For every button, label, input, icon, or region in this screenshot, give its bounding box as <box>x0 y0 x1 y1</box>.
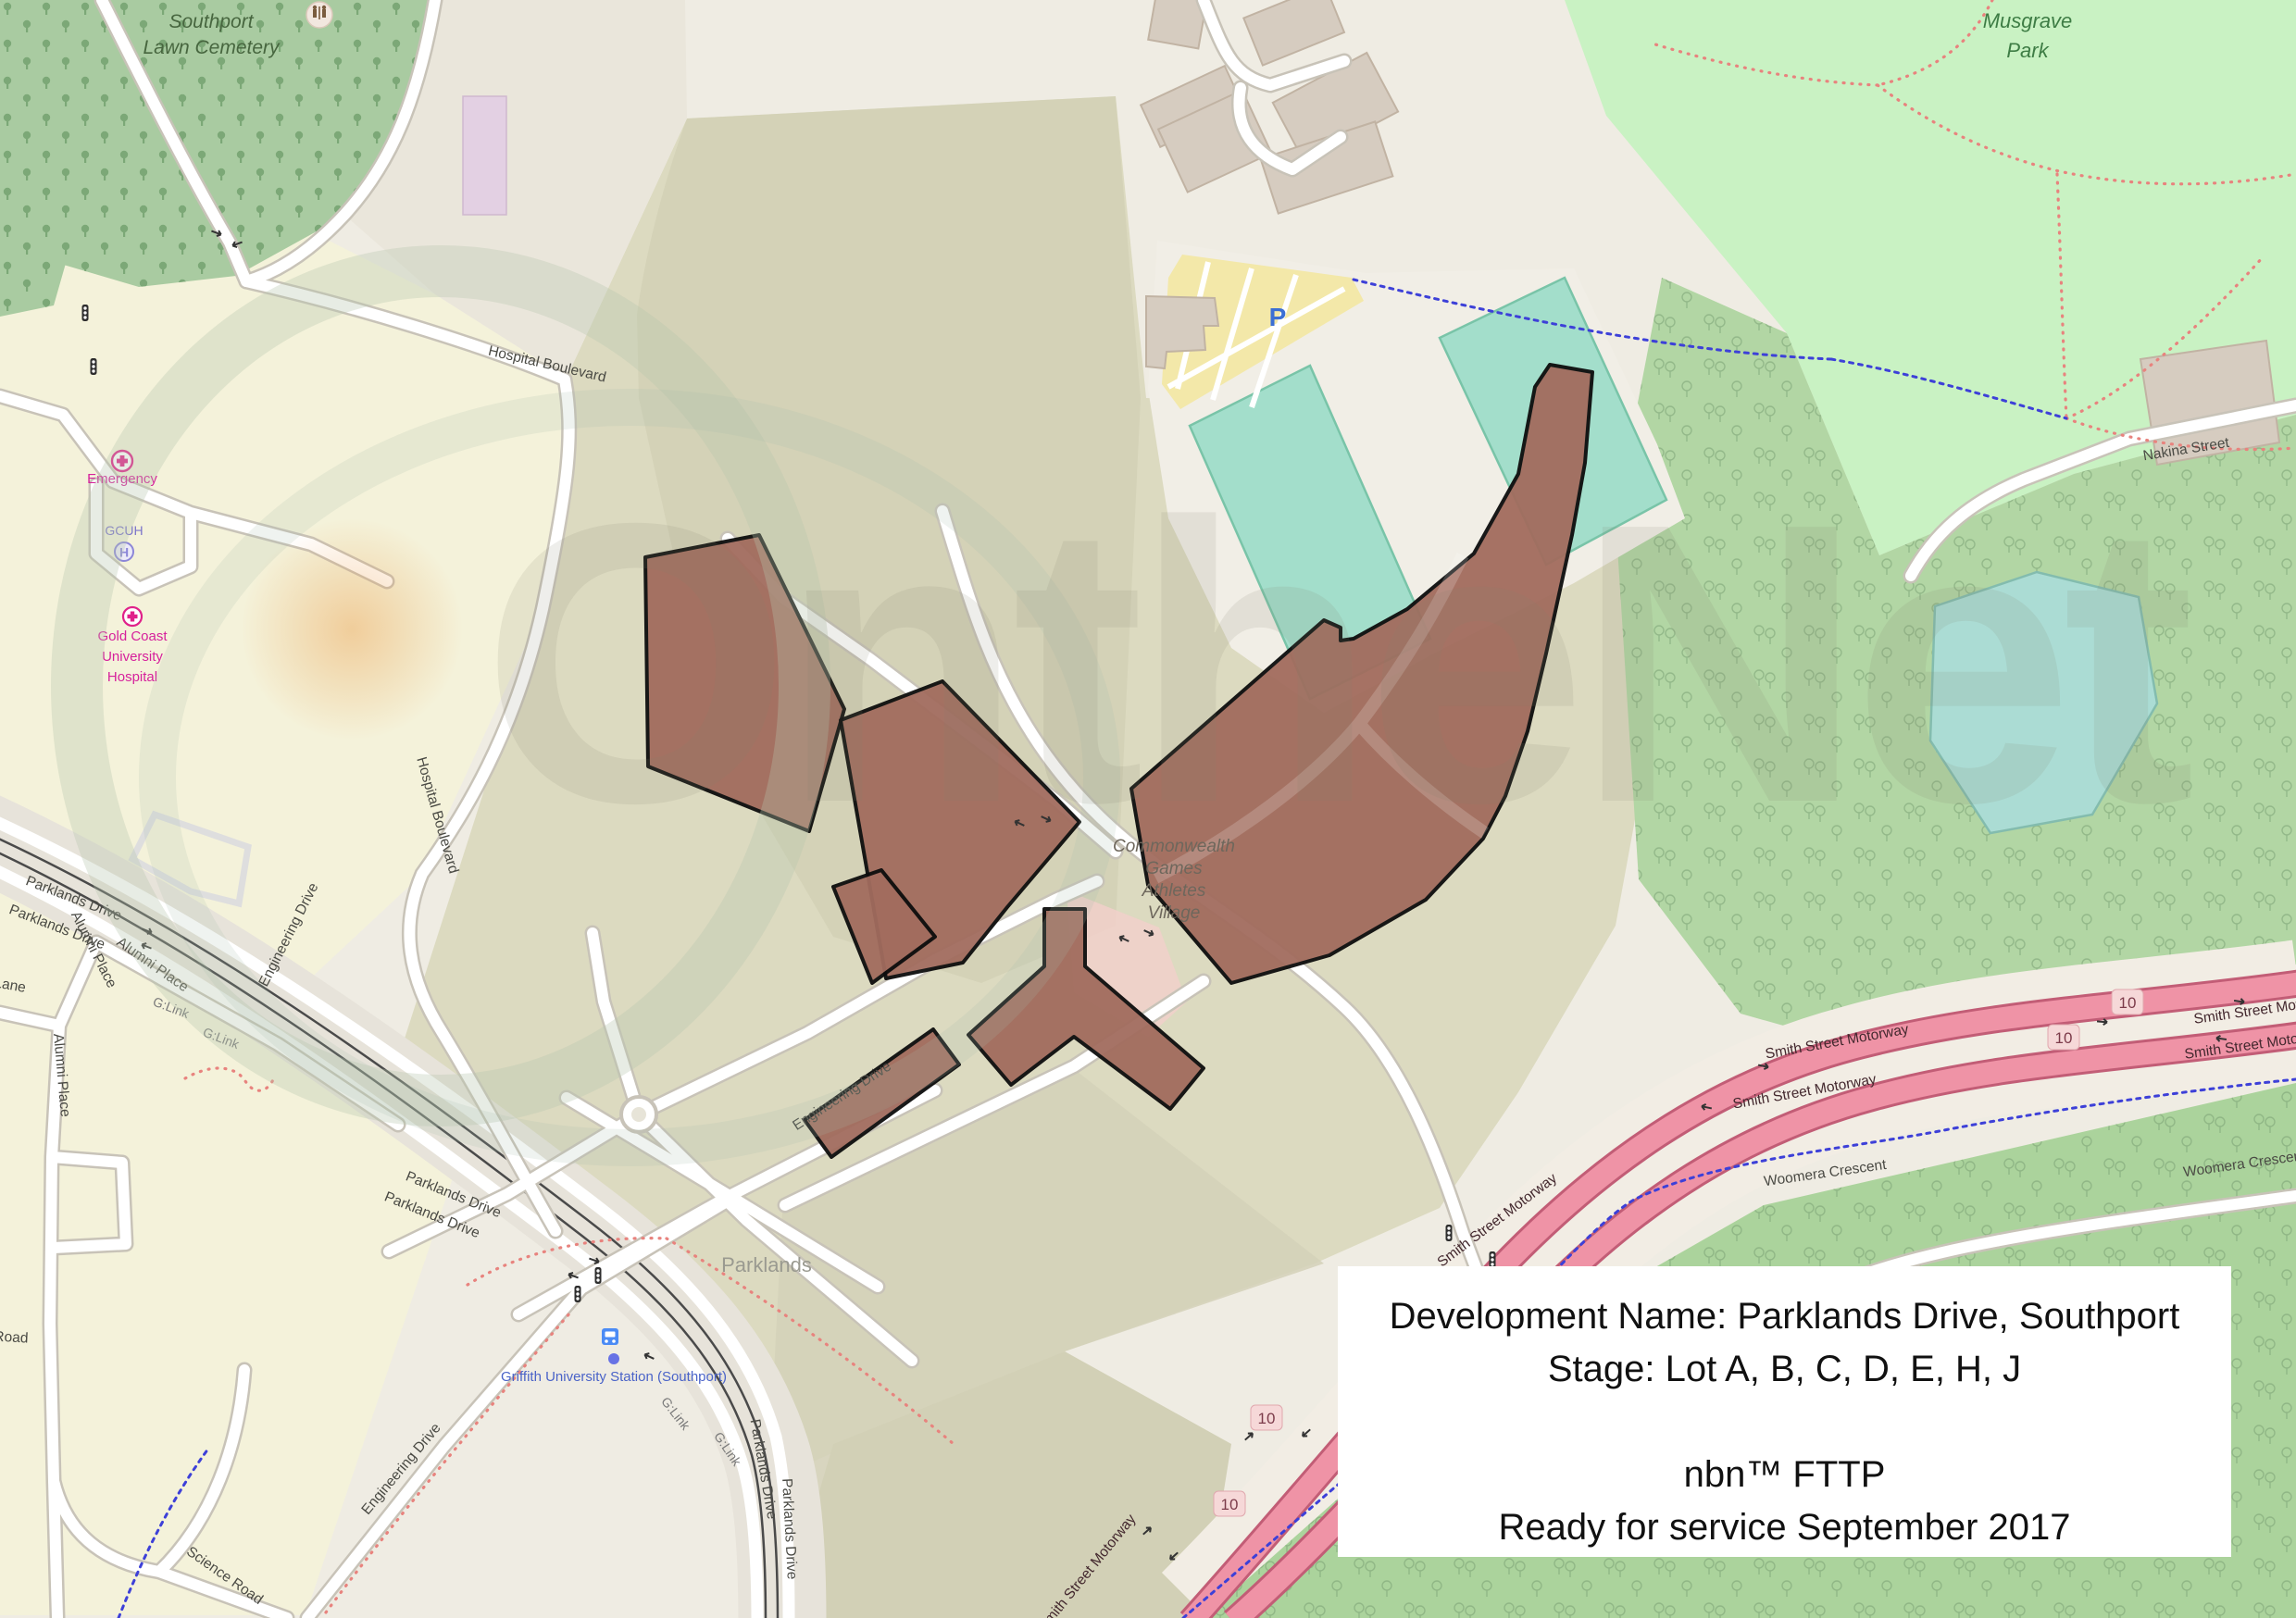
map-label: Griffith University Station (Southport) <box>501 1369 727 1385</box>
ready-for-service: Ready for service September 2017 <box>1338 1501 2231 1554</box>
bus-icon <box>602 1328 618 1345</box>
map-label: Park <box>2006 39 2049 62</box>
development-info-panel: Development Name: Parklands Drive, South… <box>1338 1266 2231 1557</box>
traffic-light-icon <box>595 1267 602 1284</box>
development-name: Development Name: Parklands Drive, South… <box>1338 1290 2231 1343</box>
station-dot-icon <box>608 1353 619 1364</box>
svg-text:10: 10 <box>1221 1496 1239 1513</box>
watermark-text: OntheNet <box>481 435 2184 892</box>
svg-text:10: 10 <box>2119 994 2137 1012</box>
traffic-light-icon <box>575 1286 581 1302</box>
traffic-light-icon <box>91 358 97 375</box>
watermark-blob <box>222 518 481 741</box>
map-label: Southport <box>168 11 254 32</box>
traffic-light-icon <box>82 305 89 321</box>
map-screenshot: H <box>0 0 2296 1618</box>
map-label: P <box>1269 303 1287 331</box>
map-label: Parklands <box>721 1253 812 1276</box>
traffic-light-icon <box>1446 1225 1453 1241</box>
toilets-icon <box>306 2 332 28</box>
map-label: Lawn Cemetery <box>143 37 281 58</box>
nbn-technology: nbn™ FTTP <box>1338 1449 2231 1501</box>
route-shield: 10 <box>2048 1025 2079 1050</box>
route-shield: 10 <box>1214 1491 1245 1516</box>
spacer <box>1338 1396 2231 1449</box>
route-shield: 10 <box>2112 989 2143 1014</box>
map-label: Village <box>1148 903 1201 923</box>
purple-building <box>463 96 506 215</box>
map-label: Musgrave <box>1983 9 2073 32</box>
route-shield: 10 <box>1251 1405 1282 1430</box>
development-stage: Stage: Lot A, B, C, D, E, H, J <box>1338 1343 2231 1396</box>
svg-text:10: 10 <box>2055 1029 2073 1047</box>
svg-text:10: 10 <box>1258 1410 1276 1427</box>
